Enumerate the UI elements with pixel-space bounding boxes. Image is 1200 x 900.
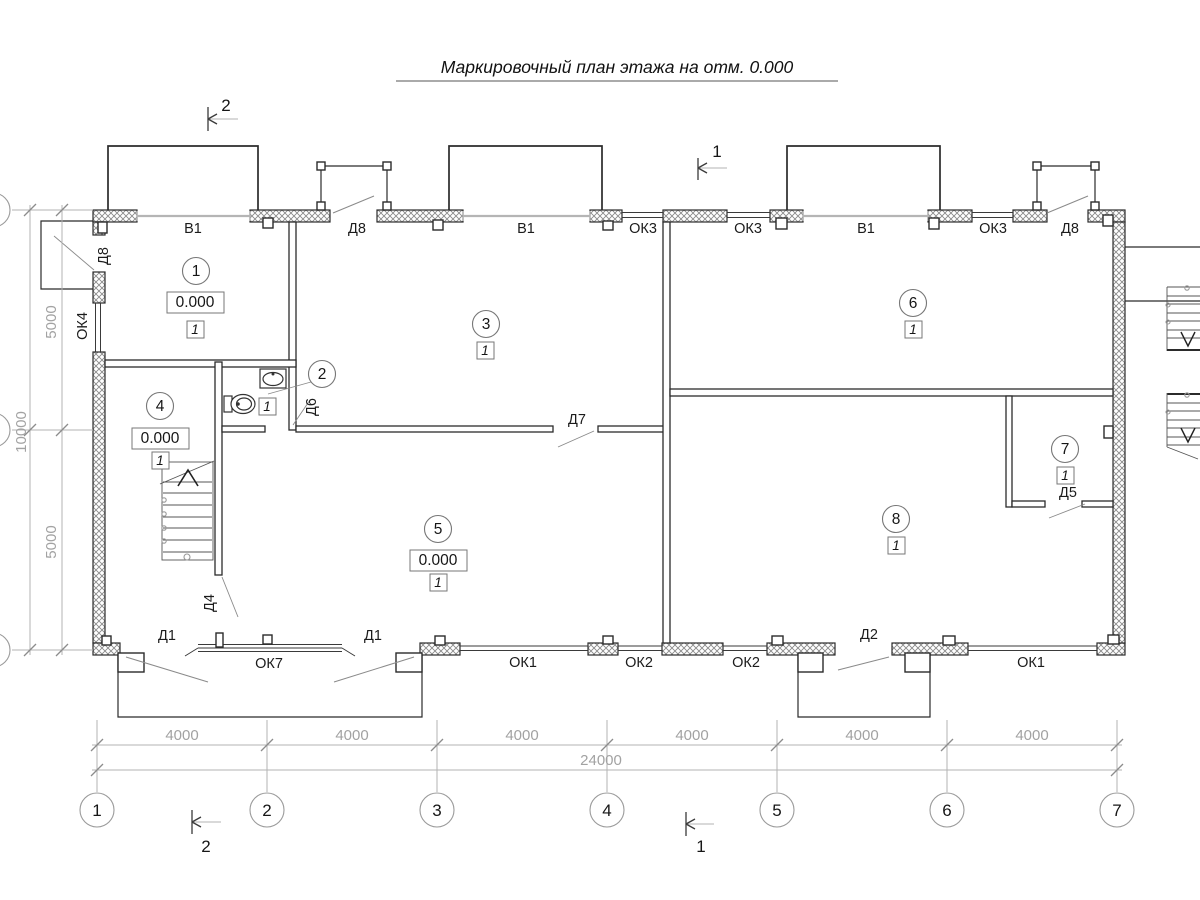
finish-tag: 1 xyxy=(909,322,917,337)
elevation-mark: 0.000 xyxy=(176,294,215,311)
finish-tag: 1 xyxy=(156,453,164,468)
dim-total: 10000 xyxy=(13,411,30,453)
room-number: 2 xyxy=(318,366,327,383)
porch-d8-top-right xyxy=(1033,162,1099,213)
room-tag-8: 8 1 xyxy=(883,506,910,555)
finish-tag: 1 xyxy=(1061,468,1069,483)
door-label: Д4 xyxy=(202,594,218,612)
window-label: ОК1 xyxy=(509,655,537,671)
interior-walls xyxy=(105,222,1113,643)
door-post-d4 xyxy=(216,633,223,647)
porch-d8-top-left xyxy=(317,162,391,213)
finish-tag: 1 xyxy=(263,399,271,414)
room-tag-1: 1 0.000 1 xyxy=(167,258,224,339)
axis-number: 4 xyxy=(602,801,611,820)
door-label: Д6 xyxy=(304,398,320,416)
window-band-v1-3 xyxy=(803,211,928,221)
door-label: Д2 xyxy=(860,627,878,643)
window-band-ok4 xyxy=(96,303,101,352)
window-band-v1-2 xyxy=(463,211,590,221)
finish-tag: 1 xyxy=(191,322,199,337)
dimension-chain-bottom: 4000 4000 4000 4000 4000 4000 24000 xyxy=(91,720,1123,792)
external-dock-lines xyxy=(1125,247,1200,301)
door-label: Д7 xyxy=(568,412,586,428)
room-number: 4 xyxy=(156,398,165,415)
axis-number: 3 xyxy=(432,801,441,820)
section-mark-1-bottom: 1 xyxy=(686,812,714,856)
porch-left xyxy=(41,221,94,289)
door-label: Д1 xyxy=(158,628,176,644)
section-label: 1 xyxy=(696,837,705,856)
exterior-wall-right xyxy=(1103,215,1125,643)
section-mark-2-bottom: 2 xyxy=(192,810,221,856)
dim-value: 4000 xyxy=(1015,727,1048,744)
window-label: ОК2 xyxy=(732,655,760,671)
stairs-up-icon xyxy=(160,461,214,560)
axis-bubbles-bottom: 1 2 3 4 5 6 7 xyxy=(80,793,1134,827)
dim-value: 4000 xyxy=(675,727,708,744)
window-label: ОК3 xyxy=(734,221,762,237)
axis-number: 1 xyxy=(92,801,101,820)
section-label: 1 xyxy=(712,142,721,161)
door-label: Д8 xyxy=(1061,221,1079,237)
door-label: Д5 xyxy=(1059,485,1077,501)
porch-bottom-right xyxy=(798,653,930,717)
axis-bubble-left xyxy=(0,633,10,667)
section-label: 2 xyxy=(201,837,210,856)
toilet-icon xyxy=(224,395,255,414)
room-tag-3: 3 1 xyxy=(473,311,500,360)
axis-number: 6 xyxy=(942,801,951,820)
axis-number: 5 xyxy=(772,801,781,820)
window-label: ОК2 xyxy=(625,655,653,671)
window-label: ОК4 xyxy=(75,312,91,340)
window-label: ОК3 xyxy=(979,221,1007,237)
room-tag-6: 6 1 xyxy=(900,290,927,339)
drawing-title: Маркировочный план этажа на отм. 0.000 xyxy=(396,57,838,81)
window-label: ОК1 xyxy=(1017,655,1045,671)
wall-pilaster xyxy=(1104,426,1113,438)
room-tag-5: 5 0.000 1 xyxy=(410,516,467,592)
bay-v1-1 xyxy=(108,146,258,210)
stairs-down-icon xyxy=(1166,286,1200,459)
room-number: 6 xyxy=(909,295,918,312)
elevation-mark: 0.000 xyxy=(141,430,180,447)
bay-v1-3 xyxy=(787,146,940,210)
dim-value: 4000 xyxy=(165,727,198,744)
dim-value: 4000 xyxy=(845,727,878,744)
window-label: ОК7 xyxy=(255,656,283,672)
room-tag-7: 7 1 xyxy=(1052,436,1079,485)
room-number: 5 xyxy=(434,521,443,538)
door-label: Д8 xyxy=(348,221,366,237)
section-label: 2 xyxy=(221,96,230,115)
dim-value: 5000 xyxy=(43,305,60,338)
axis-bubble-left xyxy=(0,413,10,447)
window-label: В1 xyxy=(857,221,875,237)
exterior-wall-left xyxy=(93,222,105,643)
axis-number: 2 xyxy=(262,801,271,820)
door-label: Д1 xyxy=(364,628,382,644)
window-label: ОК3 xyxy=(629,221,657,237)
room-number: 7 xyxy=(1061,441,1070,458)
room-tag-4: 4 0.000 1 xyxy=(132,393,189,470)
finish-tag: 1 xyxy=(481,343,489,358)
dim-value: 4000 xyxy=(335,727,368,744)
section-mark-2-top: 2 xyxy=(208,96,238,131)
dim-total: 24000 xyxy=(580,752,622,769)
window-band-ok7 xyxy=(185,645,355,657)
bay-v1-2 xyxy=(449,146,602,210)
finish-tag: 1 xyxy=(434,575,442,590)
section-mark-1-top: 1 xyxy=(698,142,727,180)
window-band-v1-1 xyxy=(137,211,250,221)
leader-lines xyxy=(222,382,1085,617)
elevation-mark: 0.000 xyxy=(419,552,458,569)
window-label: В1 xyxy=(517,221,535,237)
room-number: 1 xyxy=(192,263,201,280)
opening-labels-top: В1 Д8 В1 ОК3 ОК3 В1 ОК3 Д8 xyxy=(184,221,1079,237)
room-number: 3 xyxy=(482,316,491,333)
wall-post xyxy=(1103,215,1113,226)
floor-plan-drawing: Маркировочный план этажа на отм. 0.000 2… xyxy=(0,0,1200,900)
dim-value: 5000 xyxy=(43,525,60,558)
axis-number: 7 xyxy=(1112,801,1121,820)
page-title: Маркировочный план этажа на отм. 0.000 xyxy=(441,57,794,77)
room-number: 8 xyxy=(892,511,901,528)
door-label: Д8 xyxy=(96,247,112,265)
dim-value: 4000 xyxy=(505,727,538,744)
dimension-chain-left: 5000 5000 10000 xyxy=(0,193,93,667)
window-label: В1 xyxy=(184,221,202,237)
sink-icon xyxy=(260,369,286,388)
finish-tag: 1 xyxy=(892,538,900,553)
axis-bubble-left xyxy=(0,193,10,227)
